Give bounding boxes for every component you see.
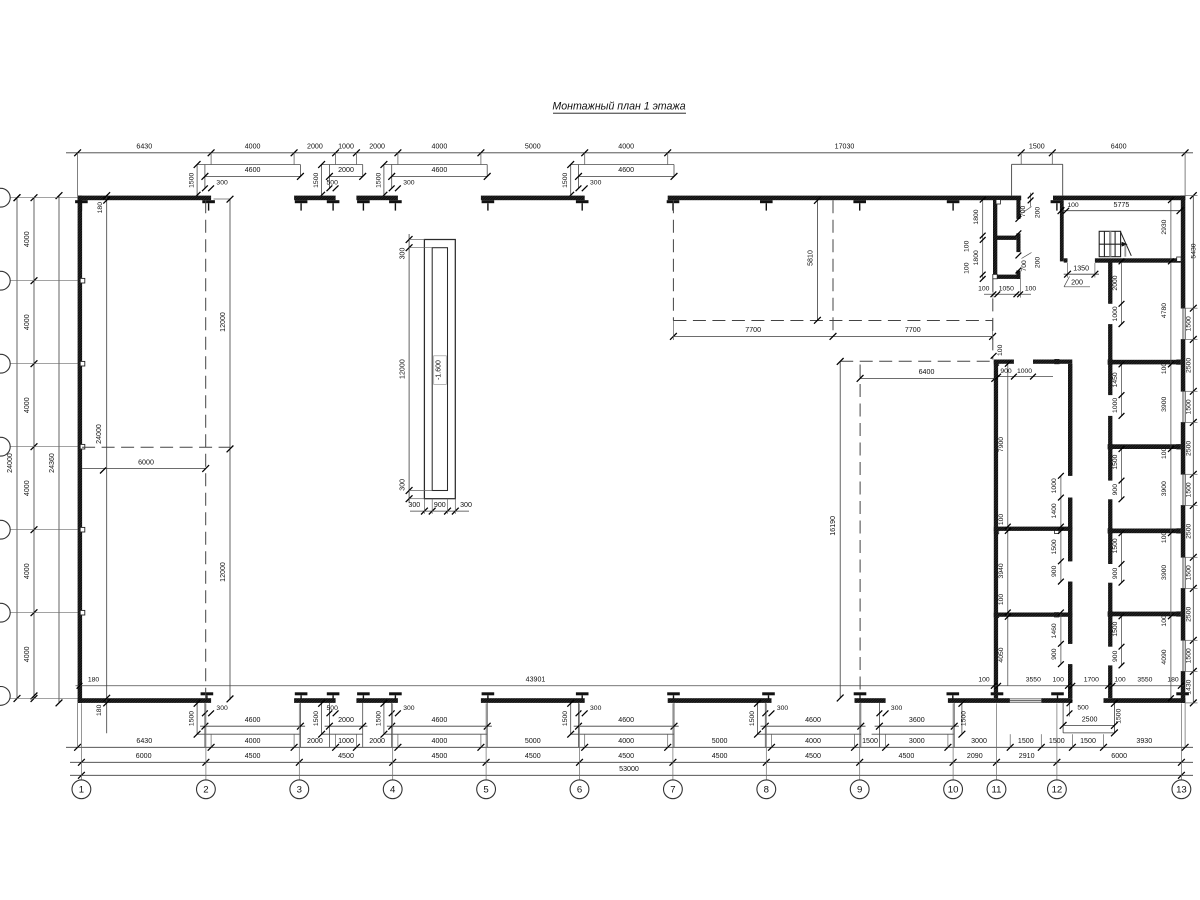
svg-text:4600: 4600 — [805, 716, 821, 724]
svg-text:4600: 4600 — [432, 716, 448, 724]
svg-text:1500: 1500 — [1018, 737, 1034, 745]
svg-text:4000: 4000 — [23, 314, 31, 330]
svg-text:3900: 3900 — [1161, 481, 1168, 496]
svg-text:1800: 1800 — [973, 209, 980, 224]
svg-text:100: 100 — [978, 677, 990, 684]
svg-text:4500: 4500 — [805, 752, 821, 760]
svg-text:200: 200 — [1071, 278, 1083, 286]
svg-text:500: 500 — [327, 705, 339, 712]
svg-text:100: 100 — [1114, 677, 1126, 684]
svg-text:2: 2 — [203, 785, 208, 796]
svg-text:3550: 3550 — [1026, 677, 1041, 684]
svg-text:100: 100 — [998, 594, 1005, 606]
svg-text:2000: 2000 — [1112, 275, 1119, 290]
svg-text:3900: 3900 — [1161, 397, 1168, 412]
svg-text:1500: 1500 — [1112, 454, 1119, 469]
svg-text:4600: 4600 — [432, 166, 448, 174]
svg-text:2500: 2500 — [1185, 441, 1192, 456]
svg-text:2090: 2090 — [967, 752, 983, 760]
svg-text:53000: 53000 — [619, 765, 639, 773]
svg-text:180: 180 — [1167, 677, 1179, 684]
svg-text:9: 9 — [857, 785, 862, 796]
svg-text:3550: 3550 — [1137, 677, 1152, 684]
svg-text:Монтажный план 1 этажа: Монтажный план 1 этажа — [552, 101, 685, 113]
svg-text:300: 300 — [460, 501, 472, 509]
svg-text:2000: 2000 — [338, 716, 354, 724]
svg-text:1500: 1500 — [1185, 399, 1192, 414]
svg-text:16190: 16190 — [829, 516, 837, 536]
svg-text:1500: 1500 — [1112, 621, 1119, 636]
svg-text:1500: 1500 — [562, 711, 569, 726]
svg-text:2000: 2000 — [369, 737, 385, 745]
svg-text:1500: 1500 — [749, 711, 756, 726]
svg-text:1: 1 — [79, 785, 84, 796]
svg-text:4500: 4500 — [432, 752, 448, 760]
svg-text:3: 3 — [297, 785, 302, 796]
svg-text:4000: 4000 — [23, 397, 31, 413]
svg-text:5430: 5430 — [1190, 243, 1197, 258]
svg-text:1800: 1800 — [973, 250, 980, 265]
svg-text:6400: 6400 — [919, 368, 935, 376]
svg-text:4780: 4780 — [1161, 303, 1168, 318]
svg-text:4000: 4000 — [618, 143, 634, 151]
svg-text:7900: 7900 — [998, 437, 1005, 452]
svg-text:1500: 1500 — [375, 173, 382, 188]
svg-text:1400: 1400 — [1051, 503, 1058, 518]
svg-text:1500: 1500 — [862, 737, 878, 745]
svg-text:2500: 2500 — [1185, 524, 1192, 539]
svg-text:300: 300 — [398, 248, 406, 260]
svg-text:12: 12 — [1052, 785, 1063, 796]
svg-text:12000: 12000 — [219, 312, 227, 332]
svg-text:2500: 2500 — [1185, 358, 1192, 373]
svg-text:300: 300 — [590, 180, 602, 187]
svg-text:1500: 1500 — [1112, 538, 1119, 553]
svg-text:2910: 2910 — [1019, 752, 1035, 760]
svg-text:1500: 1500 — [562, 173, 569, 188]
svg-text:1430: 1430 — [1185, 679, 1192, 694]
svg-text:2500: 2500 — [1082, 715, 1098, 723]
svg-text:900: 900 — [1051, 565, 1058, 577]
svg-text:4500: 4500 — [618, 752, 634, 760]
svg-text:900: 900 — [1112, 568, 1119, 580]
svg-text:12000: 12000 — [219, 562, 227, 582]
svg-text:4: 4 — [390, 785, 396, 796]
svg-text:100: 100 — [1053, 677, 1065, 684]
svg-text:4600: 4600 — [618, 716, 634, 724]
svg-text:4000: 4000 — [23, 480, 31, 496]
svg-text:1050: 1050 — [999, 286, 1014, 293]
svg-text:10: 10 — [948, 785, 959, 796]
svg-text:1500: 1500 — [961, 711, 968, 726]
svg-text:500: 500 — [327, 180, 339, 187]
svg-text:1000: 1000 — [1051, 478, 1058, 493]
svg-text:100: 100 — [998, 514, 1005, 526]
svg-text:4090: 4090 — [1161, 649, 1168, 664]
svg-text:24000: 24000 — [95, 424, 103, 444]
svg-text:24360: 24360 — [48, 453, 56, 473]
svg-text:1000: 1000 — [338, 737, 354, 745]
svg-text:5000: 5000 — [525, 143, 541, 151]
svg-text:4000: 4000 — [618, 737, 634, 745]
svg-text:180: 180 — [97, 202, 104, 214]
svg-text:7700: 7700 — [905, 326, 921, 334]
svg-text:300: 300 — [777, 705, 789, 712]
svg-text:1000: 1000 — [1017, 368, 1032, 375]
svg-text:100: 100 — [1161, 615, 1168, 627]
svg-text:1500: 1500 — [1080, 737, 1096, 745]
svg-text:6430: 6430 — [136, 143, 152, 151]
svg-text:300: 300 — [403, 180, 415, 187]
svg-text:4000: 4000 — [805, 737, 821, 745]
svg-text:4050: 4050 — [998, 647, 1005, 662]
svg-text:100: 100 — [1161, 532, 1168, 544]
svg-text:300: 300 — [216, 705, 228, 712]
svg-text:900: 900 — [1112, 484, 1119, 496]
svg-text:1500: 1500 — [1029, 143, 1045, 151]
svg-text:1500: 1500 — [1185, 565, 1192, 580]
svg-text:3930: 3930 — [1136, 737, 1152, 745]
svg-text:300: 300 — [216, 180, 228, 187]
svg-text:5000: 5000 — [525, 737, 541, 745]
svg-text:4500: 4500 — [245, 752, 261, 760]
svg-text:7700: 7700 — [745, 326, 761, 334]
svg-text:900: 900 — [1112, 650, 1119, 662]
svg-text:4600: 4600 — [245, 166, 261, 174]
svg-text:8: 8 — [764, 785, 769, 796]
svg-text:1500: 1500 — [1185, 316, 1192, 331]
svg-text:1460: 1460 — [1051, 623, 1058, 638]
svg-text:5: 5 — [483, 785, 488, 796]
svg-text:43901: 43901 — [526, 675, 546, 683]
svg-text:100: 100 — [1025, 286, 1037, 293]
svg-text:2500: 2500 — [1185, 607, 1192, 622]
svg-text:-1.600: -1.600 — [435, 360, 442, 380]
svg-text:300: 300 — [590, 705, 602, 712]
svg-text:200: 200 — [1034, 207, 1041, 219]
svg-text:4000: 4000 — [23, 231, 31, 247]
svg-text:3000: 3000 — [909, 737, 925, 745]
svg-text:5775: 5775 — [1114, 201, 1130, 209]
svg-text:300: 300 — [891, 705, 903, 712]
svg-text:1500: 1500 — [189, 173, 196, 188]
svg-text:900: 900 — [434, 501, 446, 509]
svg-text:1500: 1500 — [313, 173, 320, 188]
svg-text:1500: 1500 — [1051, 539, 1058, 554]
svg-text:100: 100 — [978, 286, 990, 293]
svg-text:500: 500 — [1077, 705, 1089, 712]
svg-text:4000: 4000 — [23, 563, 31, 579]
svg-text:4600: 4600 — [618, 166, 634, 174]
svg-text:13: 13 — [1176, 785, 1187, 796]
svg-text:3940: 3940 — [998, 563, 1005, 578]
svg-text:700: 700 — [1020, 206, 1027, 218]
svg-text:300: 300 — [398, 479, 406, 491]
svg-text:3600: 3600 — [909, 716, 925, 724]
svg-text:5000: 5000 — [712, 737, 728, 745]
svg-text:100: 100 — [997, 344, 1004, 356]
svg-text:100: 100 — [1161, 447, 1168, 459]
svg-text:3000: 3000 — [971, 737, 987, 745]
svg-text:100: 100 — [964, 240, 971, 252]
svg-text:4000: 4000 — [432, 737, 448, 745]
svg-text:4000: 4000 — [245, 143, 261, 151]
svg-text:2930: 2930 — [1161, 219, 1168, 234]
svg-text:6000: 6000 — [136, 752, 152, 760]
svg-text:1500: 1500 — [1115, 708, 1122, 723]
svg-text:6430: 6430 — [136, 737, 152, 745]
svg-text:6000: 6000 — [138, 458, 154, 466]
svg-text:900: 900 — [1051, 648, 1058, 660]
svg-text:3900: 3900 — [1161, 565, 1168, 580]
svg-text:200: 200 — [1034, 257, 1041, 269]
svg-text:180: 180 — [96, 704, 103, 716]
svg-text:700: 700 — [1021, 260, 1028, 272]
svg-text:4500: 4500 — [899, 752, 915, 760]
svg-text:1500: 1500 — [313, 711, 320, 726]
svg-text:12000: 12000 — [398, 359, 406, 379]
svg-text:300: 300 — [408, 501, 420, 509]
svg-text:2000: 2000 — [369, 143, 385, 151]
svg-text:900: 900 — [1000, 368, 1012, 375]
svg-text:100: 100 — [1161, 363, 1168, 375]
svg-text:2000: 2000 — [307, 143, 323, 151]
svg-text:11: 11 — [992, 785, 1002, 796]
svg-text:100: 100 — [1067, 202, 1079, 209]
svg-text:4000: 4000 — [23, 646, 31, 662]
svg-text:17030: 17030 — [835, 143, 855, 151]
svg-text:180: 180 — [88, 677, 100, 684]
svg-text:4500: 4500 — [712, 752, 728, 760]
svg-text:2000: 2000 — [307, 737, 323, 745]
svg-text:4000: 4000 — [245, 737, 261, 745]
svg-text:1500: 1500 — [1185, 482, 1192, 497]
svg-text:7: 7 — [670, 785, 675, 796]
svg-text:6400: 6400 — [1111, 143, 1127, 151]
svg-text:1500: 1500 — [1185, 648, 1192, 663]
svg-text:1700: 1700 — [1084, 677, 1099, 684]
svg-text:1000: 1000 — [1112, 398, 1119, 413]
svg-text:1000: 1000 — [1112, 306, 1119, 321]
svg-text:4600: 4600 — [245, 716, 261, 724]
svg-text:300: 300 — [403, 705, 415, 712]
svg-text:100: 100 — [964, 262, 971, 274]
svg-text:6000: 6000 — [1111, 752, 1127, 760]
svg-text:1000: 1000 — [338, 143, 354, 151]
svg-text:1500: 1500 — [375, 711, 382, 726]
svg-text:6: 6 — [577, 785, 582, 796]
svg-text:1350: 1350 — [1073, 264, 1089, 272]
svg-text:4000: 4000 — [432, 143, 448, 151]
svg-text:1450: 1450 — [1112, 372, 1119, 387]
svg-text:1500: 1500 — [189, 711, 196, 726]
svg-text:5810: 5810 — [806, 250, 814, 266]
svg-text:4500: 4500 — [338, 752, 354, 760]
svg-text:4500: 4500 — [525, 752, 541, 760]
svg-text:2000: 2000 — [338, 166, 354, 174]
svg-text:24000: 24000 — [6, 453, 14, 473]
